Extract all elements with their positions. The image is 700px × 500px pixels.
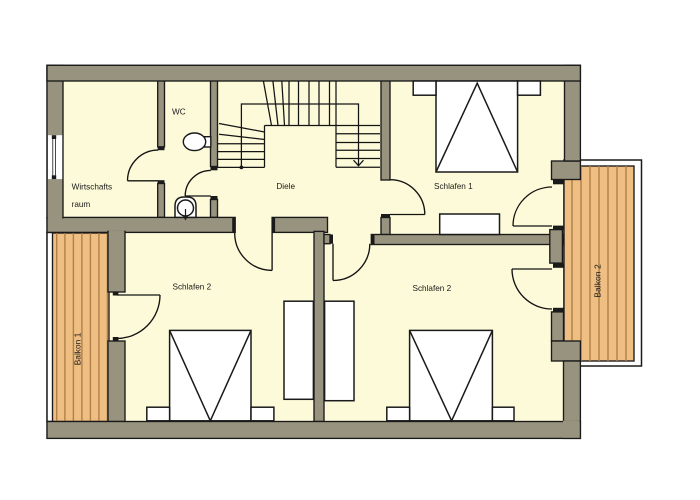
svg-text:raum: raum bbox=[72, 200, 91, 209]
svg-text:Balkon 2: Balkon 2 bbox=[593, 264, 603, 298]
svg-text:Balkon 1: Balkon 1 bbox=[73, 332, 83, 365]
svg-text:WC: WC bbox=[172, 108, 186, 117]
svg-text:Schlafen 2: Schlafen 2 bbox=[413, 284, 452, 293]
svg-text:Schlafen 2: Schlafen 2 bbox=[173, 283, 212, 292]
svg-text:Wirtschafts: Wirtschafts bbox=[72, 182, 113, 191]
svg-text:Diele: Diele bbox=[276, 182, 295, 191]
svg-text:Schlafen 1: Schlafen 1 bbox=[434, 182, 473, 191]
